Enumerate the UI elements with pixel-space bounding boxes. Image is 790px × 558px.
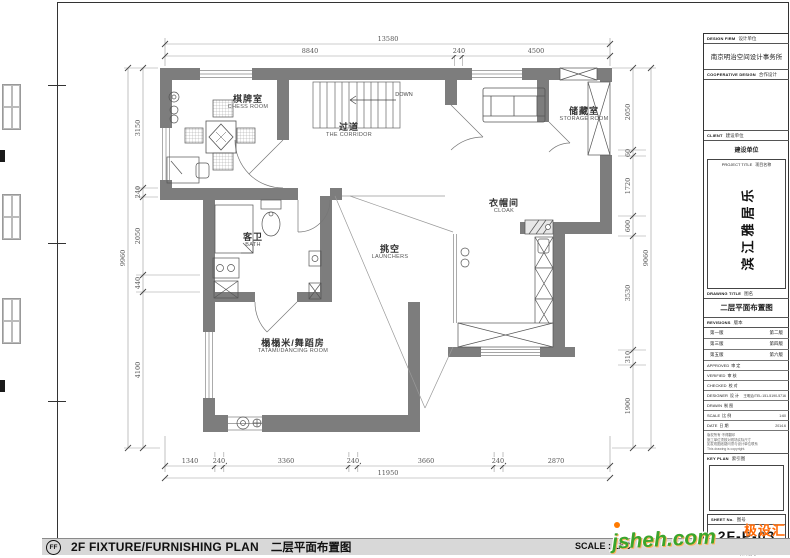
project-title-value: 滨江雅居乐 [737, 185, 756, 270]
revision-row: 第五版 第六版 [704, 350, 789, 361]
design-firm-header: DESIGN FIRM 设计单位 [704, 34, 789, 44]
key-plan-header: KEY PLAN 索引图 [704, 454, 789, 463]
fold-mark [0, 150, 5, 162]
design-firm-label: DESIGN FIRM [707, 36, 735, 41]
room-label-corridor: 过道 THE CORRIDOR [326, 122, 372, 139]
sink-icon [213, 251, 321, 299]
dim-left-overall: 9960 [119, 250, 127, 267]
room-label-bath: 客卫 BATH [243, 232, 263, 249]
copyright-note: 版权所有·不得翻印 施工单位须核对现场实际尺寸 如发现图纸疑问须与设计单位联系 … [704, 431, 789, 454]
dim-bottom-seg: 1340 [181, 457, 200, 465]
designer-row: DESIGNER 设 计 王明治/TEL:151-5190-5716 [704, 391, 789, 401]
dim-left-seg: 2050 [134, 228, 142, 245]
room-name-en: BATH [243, 242, 263, 248]
void-boundary [335, 196, 453, 408]
verified-row: VERIFIED 审 核 [704, 371, 789, 381]
registration-tick [48, 85, 66, 86]
dim-right-seg: 310 [624, 351, 632, 363]
margin-box [2, 298, 21, 344]
dim-bottom-seg: 240 [346, 457, 360, 465]
room-name-cn: 客卫 [243, 232, 263, 242]
drawing-title-header: DRAWING TITLE 图名 [704, 289, 789, 299]
room-name-cn: 储藏室 [559, 106, 608, 116]
room-name-en: CHESS ROOM [228, 104, 269, 110]
dim-left-seg: 240 [134, 186, 142, 198]
room-name-cn: 棋牌室 [228, 94, 269, 104]
detail-bubble-icon: FF [46, 540, 61, 555]
dim-bottom-seg: 3660 [417, 457, 436, 465]
dim-top-seg: 4500 [527, 47, 546, 55]
dim-bottom-seg: 240 [491, 457, 505, 465]
dim-bottom-seg: 240 [212, 457, 226, 465]
coop-design-header: COOPERATIVE DESIGN 合作设计 [704, 70, 789, 80]
approved-row: APPROVED 审 定 [704, 361, 789, 371]
room-label-tatami: 榻榻米/舞蹈房 TATAMI/DANCING ROOM [258, 338, 328, 355]
sofa-icon [483, 88, 545, 122]
client-header: CLIENT 建设单位 [704, 131, 789, 141]
floor-drain-icons [237, 417, 261, 429]
toilet-icon [261, 200, 281, 236]
registration-tick [48, 401, 66, 402]
registration-tick [48, 243, 66, 244]
drawn-row: DRAWN 制 图 [704, 401, 789, 411]
room-name-cn: 过道 [326, 122, 372, 132]
scale-row: SCALE 比 例 1:60 [704, 411, 789, 421]
revisions-header: REVISIONS 版本 [704, 318, 789, 328]
date-row: DATE 日 期 2014.6 [704, 421, 789, 431]
revision-row: 第一版 第二版 [704, 328, 789, 339]
desk-icon [167, 157, 209, 183]
room-name-en: TATAMI/DANCING ROOM [258, 348, 328, 354]
dim-top-seg: 8840 [301, 47, 320, 55]
checked-row: CHECKED 校 对 [704, 381, 789, 391]
key-plan-box [709, 465, 784, 511]
room-label-void: 挑空 LAUNCHERS [372, 244, 409, 261]
dim-top-seg: 240 [452, 47, 466, 55]
dim-right-seg: 3530 [624, 285, 632, 302]
dim-right-seg: 2050 [624, 104, 632, 121]
title-block: DESIGN FIRM 设计单位 南京明治空间设计事务所 COOPERATIVE… [703, 33, 789, 539]
scale-label: SCALE : 1/60 [575, 541, 631, 551]
dim-left-seg: 3150 [134, 120, 142, 137]
dim-right-seg: 600 [624, 220, 632, 232]
room-name-en: STORAGE ROOM [559, 116, 608, 122]
revision-row: 第三版 第四版 [704, 339, 789, 350]
design-firm-value: 南京明治空间设计事务所 [704, 44, 789, 70]
dim-right-seg: 60 [624, 149, 632, 157]
room-label-cloak: 衣帽间 CLOAK [489, 198, 519, 215]
dim-bottom-overall: 11950 [377, 469, 400, 477]
dim-bottom-seg: 3360 [277, 457, 296, 465]
room-label-chess: 棋牌室 CHESS ROOM [228, 94, 269, 111]
coop-design-value [704, 80, 789, 131]
dim-left-seg: 4100 [134, 362, 142, 379]
room-name-cn: 榻榻米/舞蹈房 [258, 338, 328, 348]
project-title-box: PROJECT TITLE 项目名称 滨江雅居乐 [707, 159, 786, 289]
dim-right-overall: 9060 [642, 250, 650, 267]
sheet-top-border [57, 2, 788, 3]
sheet-title-cn: 二层平面布置图 [271, 539, 352, 555]
dim-bottom-seg: 2870 [547, 457, 566, 465]
drawing-title-value: 二层平面布置图 [704, 299, 789, 318]
room-name-en: THE CORRIDOR [326, 132, 372, 138]
floor-plan-drawing [120, 30, 680, 500]
room-name-cn: 衣帽间 [489, 198, 519, 208]
dim-top-overall: 13580 [377, 35, 400, 43]
client-value: 建设单位 [704, 141, 789, 159]
room-name-en: LAUNCHERS [372, 254, 409, 260]
sheet-title-bar: FF 2F FIXTURE/FURNISHING PLAN 二层平面布置图 [42, 538, 790, 555]
sheet-left-border [57, 2, 58, 538]
watermark-dot-icon [614, 522, 620, 528]
mahjong-table-icon [206, 121, 236, 153]
switch-marker-icons [461, 248, 469, 267]
margin-box [2, 194, 21, 240]
dim-right-seg: 1720 [624, 178, 632, 195]
sheet-title-en: 2F FIXTURE/FURNISHING PLAN [71, 540, 259, 554]
room-name-cn: 挑空 [372, 244, 409, 254]
fold-mark [0, 380, 5, 392]
stairs-down-label: DOWN [395, 92, 412, 98]
room-name-en: CLOAK [489, 208, 519, 214]
dim-right-seg: 1900 [624, 398, 632, 415]
margin-box [2, 84, 21, 130]
room-label-storage: 储藏室 STORAGE ROOM [559, 106, 608, 123]
dim-left-seg: 440 [134, 277, 142, 289]
